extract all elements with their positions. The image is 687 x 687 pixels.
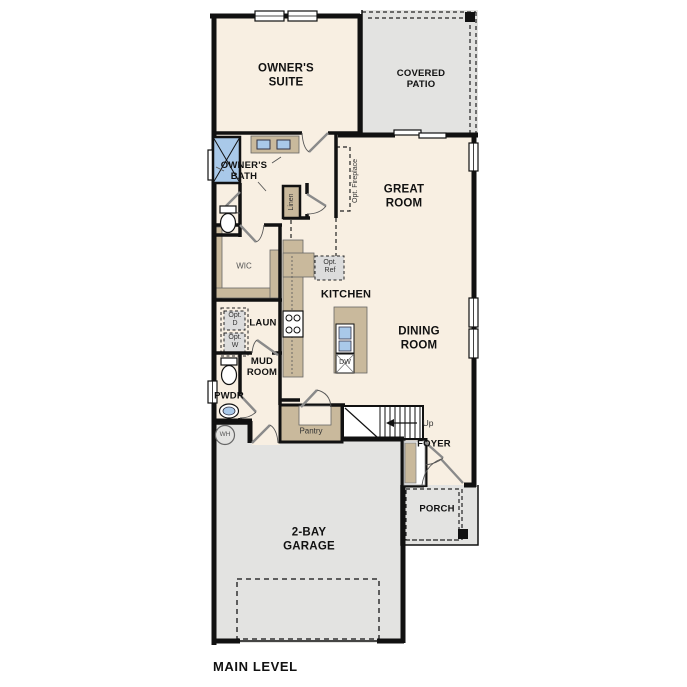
pantry-label: Pantry [299, 426, 322, 435]
patio-slider-panel-1 [394, 130, 421, 135]
kitchen-label: KITCHEN [321, 289, 371, 302]
porch-post [458, 529, 468, 539]
patio-post [465, 12, 475, 22]
owners-suite-label: OWNER'S SUITE [244, 62, 328, 89]
pwdr-toilet [221, 358, 237, 385]
dining-room-label: DINING ROOM [390, 325, 448, 352]
opt-dryer-label: Opt. D [225, 312, 245, 329]
bath-toilet [220, 206, 236, 233]
water-heater-label: WH [220, 431, 231, 439]
range-cooktop [283, 311, 303, 337]
opt-fireplace-label: Opt. Fireplace [352, 159, 360, 203]
stairs-up-label: Up [423, 418, 434, 428]
pwdr-sink-basin [223, 407, 235, 415]
foyer-label: FOYER [417, 438, 451, 449]
linen-label: Linen [287, 193, 295, 210]
opt-washer-label: Opt. W [225, 334, 245, 351]
garage-label: 2-BAY GARAGE [277, 526, 341, 553]
opt-ref-label: Opt. Ref [319, 259, 341, 276]
foyer-closet-shelf2 [405, 443, 416, 483]
pwdr-label: PWDR [214, 390, 244, 401]
floorplan-page: OWNER'S SUITE COVERED PATIO OWNER'S BATH… [0, 0, 687, 687]
laundry-label: LAUN [249, 317, 276, 328]
island-sink [336, 324, 354, 353]
covered-patio-label: COVERED PATIO [392, 68, 450, 90]
floorplan-drawing [0, 0, 687, 687]
wic-shelf-bottom [213, 288, 275, 298]
stairs [343, 406, 423, 439]
plan-title: MAIN LEVEL [213, 659, 298, 674]
mud-room-label: MUD ROOM [241, 356, 283, 378]
vanity-sink-2 [277, 140, 290, 149]
pantry-closet [280, 405, 342, 442]
kitchen-counter-top [283, 253, 314, 277]
vanity-sink-1 [257, 140, 270, 149]
wic-shelf-right [270, 250, 279, 298]
great-room-label: GREAT ROOM [378, 183, 430, 210]
dishwasher-label: DW [339, 359, 351, 367]
owners-bath-label: OWNER'S BATH [216, 160, 272, 182]
wic-label: WIC [236, 261, 252, 270]
porch-label: PORCH [419, 503, 454, 514]
patio-slider-panel-2 [419, 133, 446, 138]
